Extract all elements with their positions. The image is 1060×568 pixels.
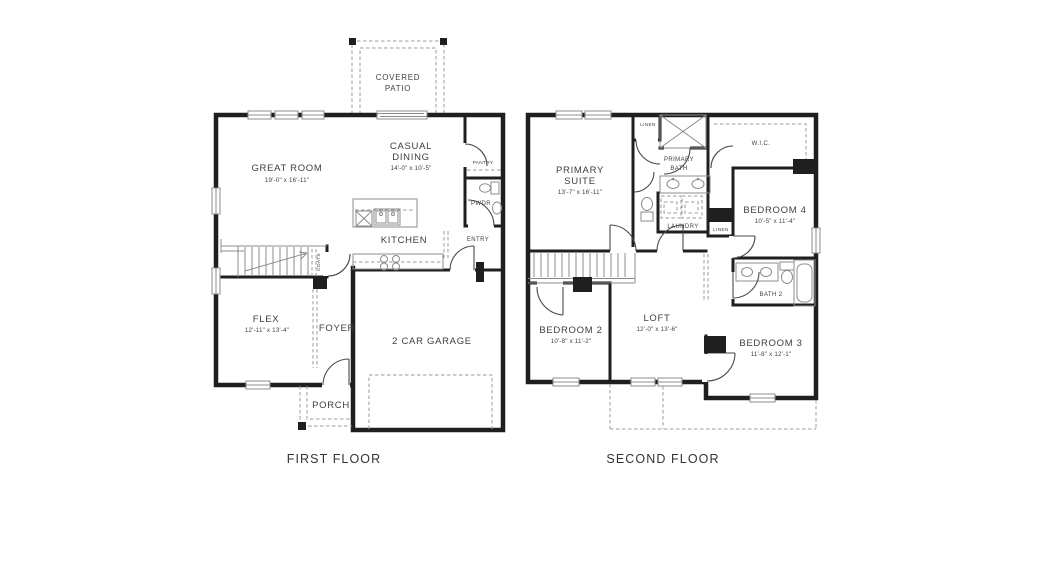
bedroom2-label: BEDROOM 2 xyxy=(539,325,602,336)
first-floor-plan: COATS xyxy=(212,38,503,466)
primary-bath-label: PRIMARY xyxy=(664,157,694,163)
window xyxy=(631,378,655,386)
window xyxy=(302,111,324,119)
great-room-dims: 19'-0" x 16'-11" xyxy=(265,177,309,184)
bath2-fixtures xyxy=(736,260,815,306)
ff-door-openings xyxy=(322,143,494,389)
wall-chunk xyxy=(476,262,484,282)
loft-label: LOFT xyxy=(643,313,670,324)
shower-icon xyxy=(660,115,706,148)
wic-door xyxy=(711,146,733,168)
wall-chunk xyxy=(704,336,726,353)
toilet-icon xyxy=(641,198,653,222)
ff-stairs xyxy=(221,239,327,277)
second-floor-title: SECOND FLOOR xyxy=(606,452,719,466)
window xyxy=(750,394,775,402)
sink-icon xyxy=(692,180,704,189)
primary-suite-label: PRIMARY xyxy=(556,165,604,176)
wall-chunk xyxy=(793,159,816,174)
primary-vanity xyxy=(660,176,710,193)
second-floor-plan: PRIMARY SUITE 13'-7" x 16'-11" LINEN PRI… xyxy=(528,111,820,466)
powder-fixtures xyxy=(480,182,502,214)
wall-chunk xyxy=(573,277,592,292)
casual-dining-dims: 14'-0" x 10'-5" xyxy=(390,165,431,172)
flex-label: FLEX xyxy=(253,314,280,325)
bedroom2-dims: 10'-8" x 11'-2" xyxy=(551,338,592,345)
linen-label: LINEN xyxy=(640,122,656,128)
pantry-label: PANTRY xyxy=(473,160,494,166)
wic-label: W.I.C. xyxy=(752,141,771,147)
covered-patio-label: COVERED xyxy=(376,73,420,82)
window xyxy=(585,111,611,119)
window xyxy=(248,111,271,119)
window xyxy=(212,188,220,214)
flex-foyer-opening xyxy=(313,289,317,368)
window xyxy=(246,381,270,389)
window xyxy=(812,228,820,253)
patio-slider-door xyxy=(377,111,427,119)
casual-dining-label: CASUAL xyxy=(390,141,432,152)
loft-hall-opening xyxy=(704,254,708,300)
kitchen-island xyxy=(353,199,417,227)
laundry-label: LAUNDRY xyxy=(667,224,698,230)
toilet-icon xyxy=(780,262,794,270)
water-closet-door xyxy=(634,172,654,192)
floor-plan-image: COATS xyxy=(0,0,1060,568)
window xyxy=(212,268,220,294)
roof-footprint-outline xyxy=(610,384,816,429)
linen-hall-label: LINEN xyxy=(713,227,729,233)
toilet-icon xyxy=(480,184,491,192)
washer-dryer-icons xyxy=(661,196,702,218)
coats-door xyxy=(328,254,350,276)
wall-chunk xyxy=(708,208,733,222)
wall-chunk xyxy=(313,277,327,289)
garage-label: 2 CAR GARAGE xyxy=(392,336,472,347)
coats-label: COATS xyxy=(316,253,322,271)
covered-patio-label2: PATIO xyxy=(385,84,411,93)
sink-icon xyxy=(761,268,772,277)
garage-door-outline xyxy=(369,375,492,429)
loft-dims: 12'-0" x 13'-6" xyxy=(636,326,677,333)
sink-icon xyxy=(742,268,753,277)
primary-suite-label2: SUITE xyxy=(564,176,595,187)
stove-icon xyxy=(381,256,400,271)
flex-dims: 12'-11" x 13'-4" xyxy=(245,327,289,334)
first-floor-title: FIRST FLOOR xyxy=(287,452,382,466)
primary-suite-dims: 13'-7" x 16'-11" xyxy=(558,189,602,196)
sf-labels: PRIMARY SUITE 13'-7" x 16'-11" LINEN PRI… xyxy=(539,122,806,466)
bath2-label: BATH 2 xyxy=(760,292,783,298)
foyer-label: FOYER xyxy=(319,323,355,334)
entry-label: ENTRY xyxy=(467,237,489,243)
great-room-label: GREAT ROOM xyxy=(251,163,322,174)
porch-label: PORCH xyxy=(312,400,350,411)
bedroom2-door xyxy=(537,287,563,315)
window xyxy=(275,111,298,119)
sink-icon xyxy=(667,180,679,189)
bedroom4-label: BEDROOM 4 xyxy=(743,205,806,216)
bedroom4-dims: 10'-5" x 11'-4" xyxy=(755,218,796,225)
window xyxy=(658,378,682,386)
window xyxy=(553,378,579,386)
pwdr-label: PWDR xyxy=(471,201,491,207)
casual-dining-label2: DINING xyxy=(392,152,429,163)
ff-doors xyxy=(323,144,494,385)
primary-bath-label2: BATH xyxy=(670,166,687,172)
bedroom3-dims: 11'-8" x 12'-1" xyxy=(751,351,792,358)
bedroom3-door xyxy=(707,353,735,381)
sink-icon xyxy=(493,202,502,214)
floorplan-canvas: COATS xyxy=(0,0,1060,568)
kitchen-label: KITCHEN xyxy=(381,235,428,246)
coats-closet: COATS xyxy=(312,249,322,276)
kitchen-entry-opening xyxy=(444,231,448,258)
bedroom3-label: BEDROOM 3 xyxy=(739,338,802,349)
window xyxy=(556,111,582,119)
